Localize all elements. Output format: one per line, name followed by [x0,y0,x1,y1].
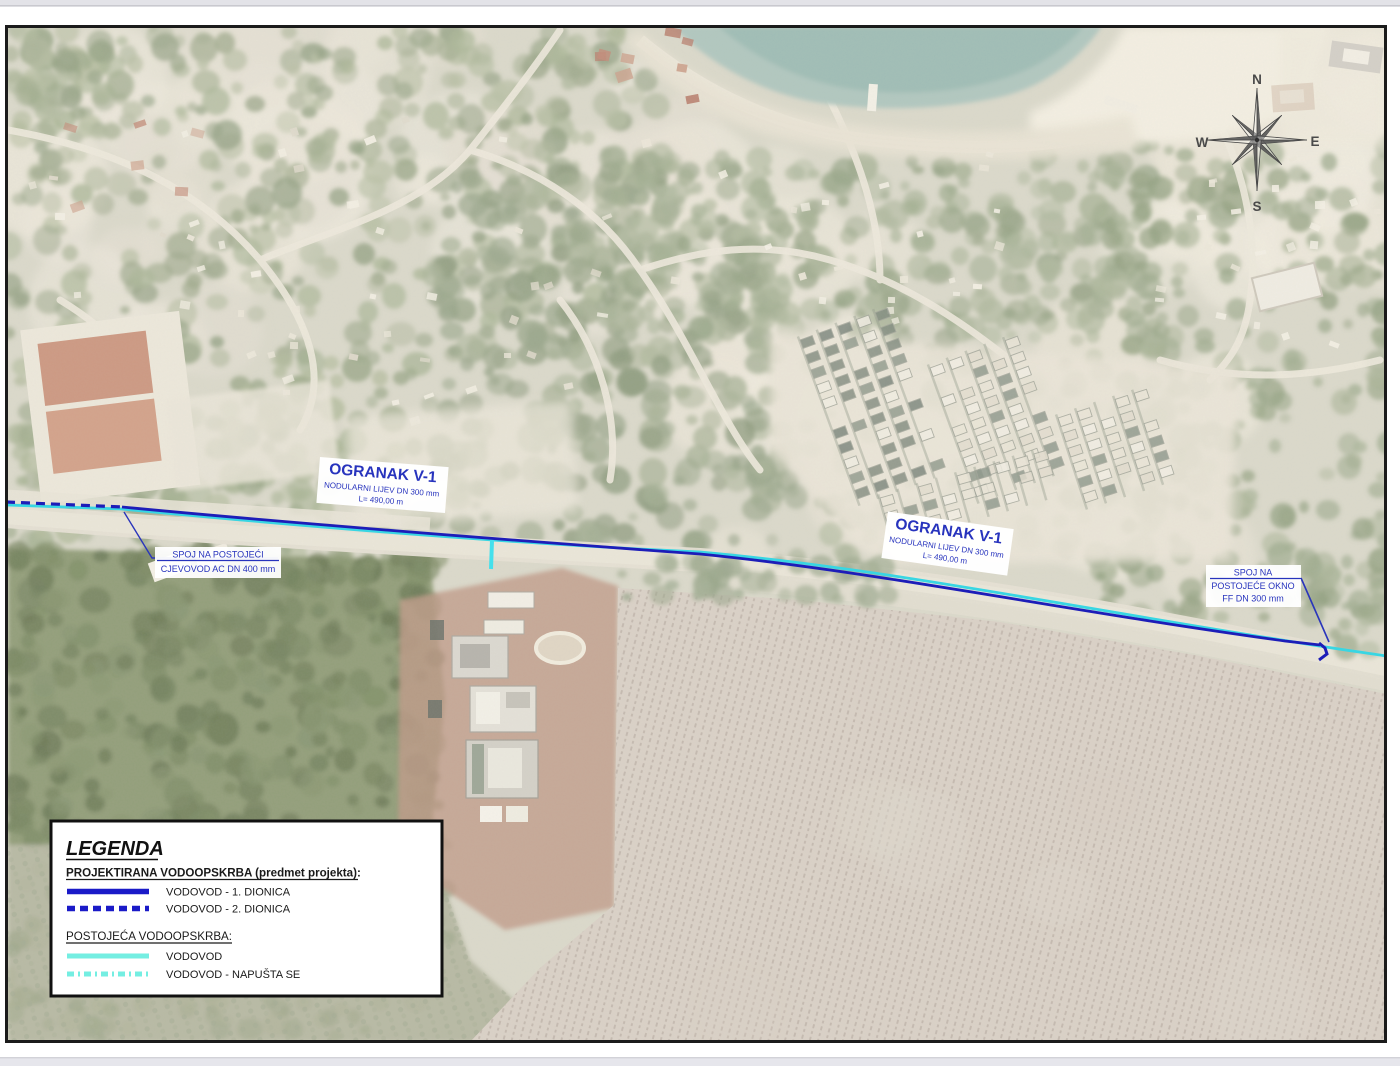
svg-text:E: E [1310,134,1319,149]
svg-text:VODOVOD: VODOVOD [166,951,222,963]
svg-text:POSTOJEĆE OKNO: POSTOJEĆE OKNO [1211,581,1294,591]
svg-text:FF DN 300 mm: FF DN 300 mm [1222,594,1284,604]
svg-text:POSTOJEĆA VODOOPSKRBA:: POSTOJEĆA VODOOPSKRBA: [66,930,232,943]
svg-text:N: N [1252,72,1262,87]
svg-text:SPOJ NA: SPOJ NA [1234,568,1273,578]
svg-text:CJEVOVOD AC DN 400 mm: CJEVOVOD AC DN 400 mm [161,564,276,574]
svg-text:SPOJ NA POSTOJEĆI: SPOJ NA POSTOJEĆI [172,550,263,560]
svg-text:W: W [1196,135,1209,150]
svg-text:S: S [1252,199,1261,214]
svg-text:VODOVOD - 2. DIONICA: VODOVOD - 2. DIONICA [166,904,291,916]
svg-text:PROJEKTIRANA VODOOPSKRBA (pred: PROJEKTIRANA VODOOPSKRBA (predmet projek… [66,867,361,880]
svg-text:VODOVOD - NAPUŠTA SE: VODOVOD - NAPUŠTA SE [166,968,300,981]
svg-text:LEGENDA: LEGENDA [66,838,164,860]
svg-text:VODOVOD - 1. DIONICA: VODOVOD - 1. DIONICA [166,887,291,899]
